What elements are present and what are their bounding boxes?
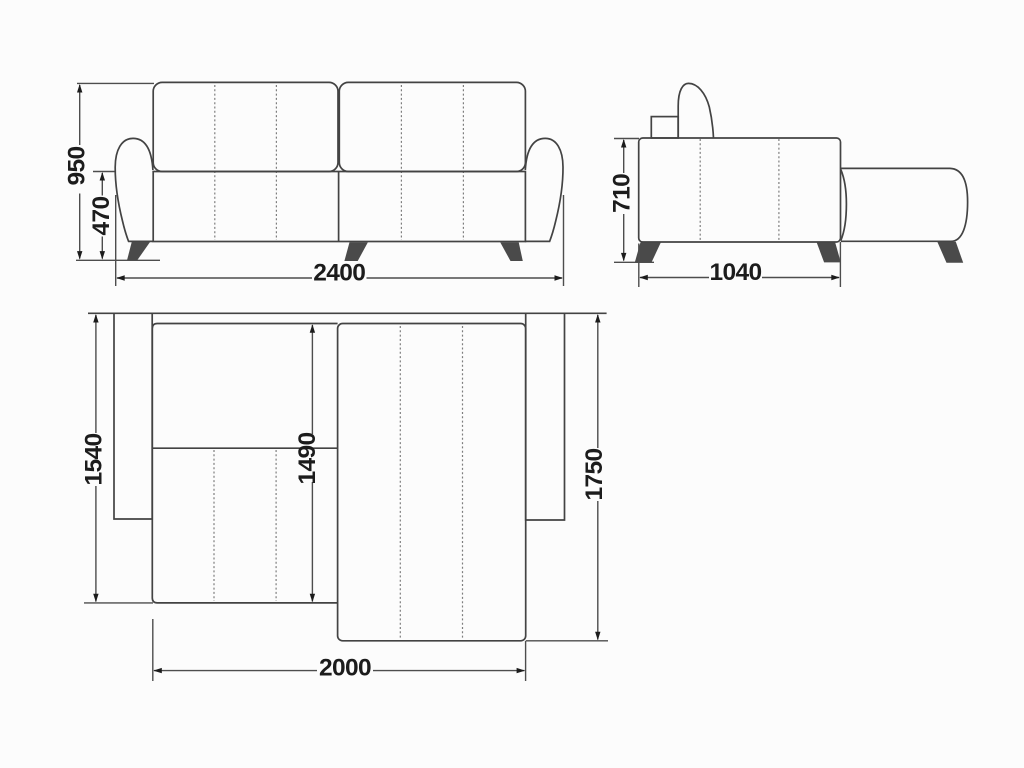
svg-text:1540: 1540 [80,433,107,485]
svg-text:950: 950 [63,146,90,185]
svg-text:710: 710 [608,174,635,213]
svg-text:1750: 1750 [581,448,608,500]
svg-text:1040: 1040 [709,259,761,286]
svg-text:470: 470 [88,196,115,235]
svg-text:2400: 2400 [313,259,365,286]
svg-text:2000: 2000 [319,655,371,682]
svg-text:1490: 1490 [294,432,321,484]
